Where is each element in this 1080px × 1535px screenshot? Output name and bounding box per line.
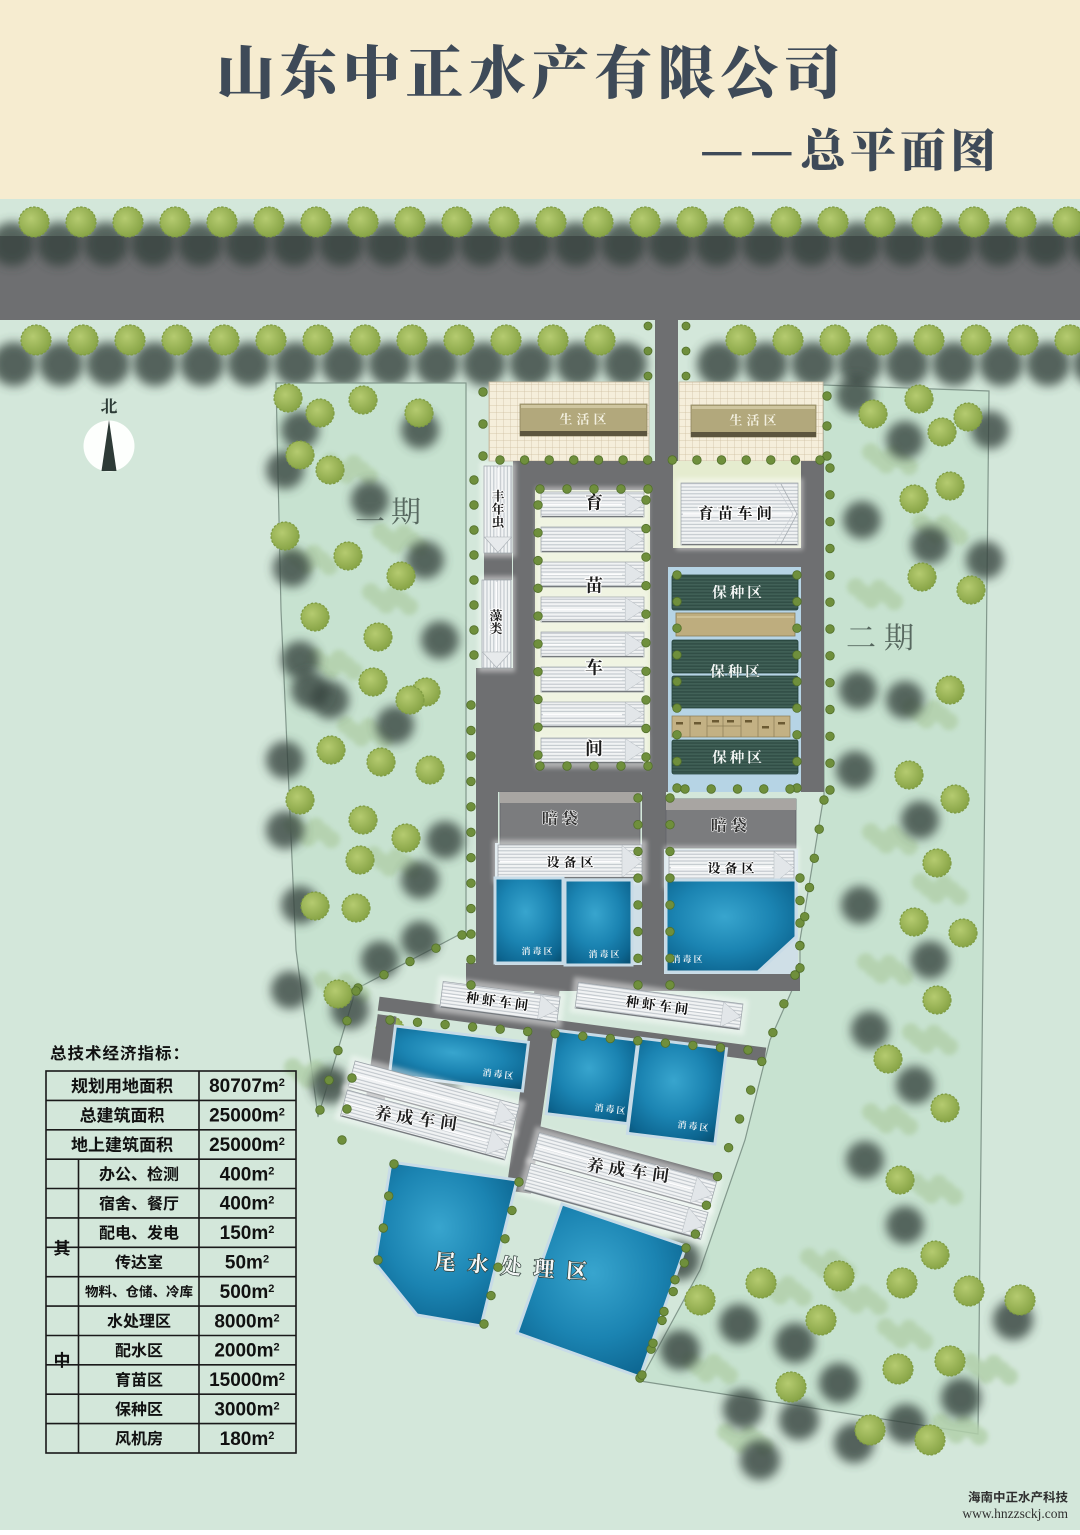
svg-text:500m2: 500m2	[220, 1282, 275, 1303]
svg-text:15000m2: 15000m2	[209, 1370, 285, 1391]
svg-text:25000m2: 25000m2	[209, 1135, 285, 1156]
svg-text:80707m2: 80707m2	[209, 1076, 285, 1097]
svg-text:400m2: 400m2	[220, 1164, 275, 1185]
svg-text:8000m2: 8000m2	[214, 1311, 279, 1332]
svg-text:150m2: 150m2	[220, 1223, 275, 1244]
svg-text:180m2: 180m2	[220, 1429, 275, 1450]
svg-text:25000m2: 25000m2	[209, 1106, 285, 1127]
svg-text:400m2: 400m2	[220, 1194, 275, 1215]
svg-text:50m2: 50m2	[225, 1253, 269, 1274]
svg-text:www.hnzzsckj.com: www.hnzzsckj.com	[962, 1506, 1068, 1521]
svg-text:2000m2: 2000m2	[214, 1341, 279, 1362]
svg-text:3000m2: 3000m2	[214, 1399, 279, 1420]
